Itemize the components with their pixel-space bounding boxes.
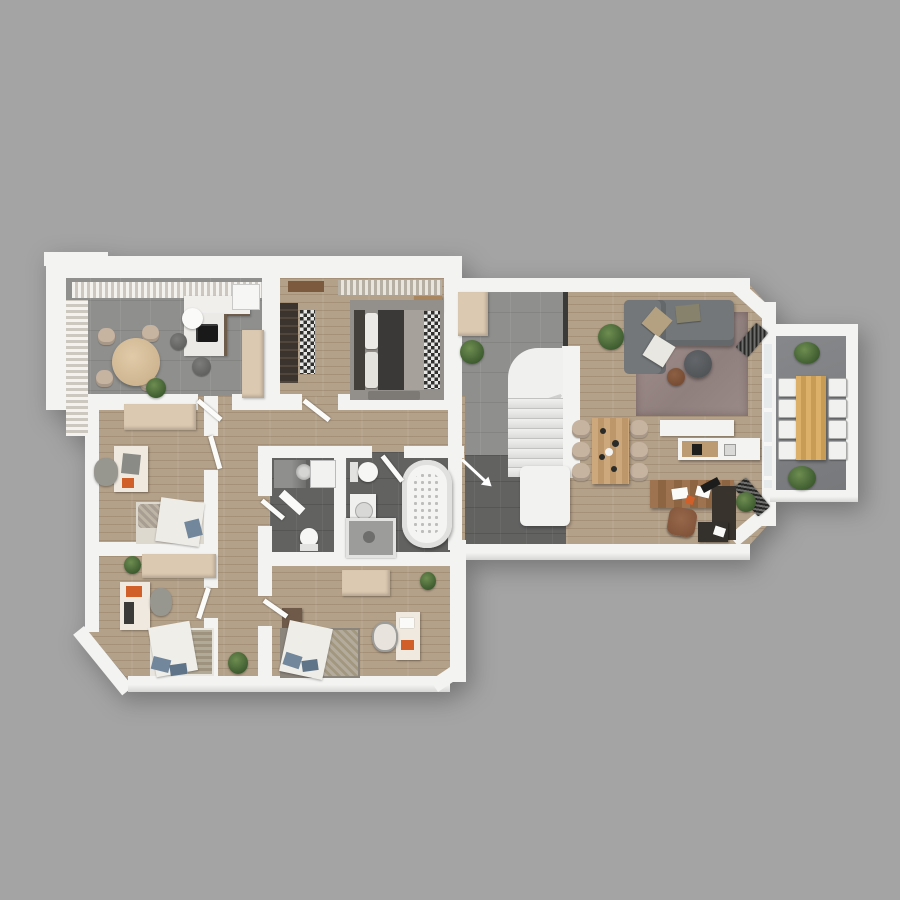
patterned-runner-bed bbox=[424, 311, 440, 389]
master-wardrobe bbox=[280, 303, 298, 383]
bath-toilet bbox=[358, 462, 378, 482]
balcony-chair bbox=[778, 378, 797, 397]
jacuzzi-bathtub bbox=[402, 460, 452, 548]
kitchen-fridge bbox=[232, 284, 260, 310]
kitchen-tall-cabinet bbox=[242, 330, 264, 398]
balcony-table bbox=[796, 376, 826, 460]
living-dining-chair bbox=[630, 463, 648, 481]
staircase-winder-block bbox=[508, 348, 563, 399]
balcony-plant-bottom bbox=[788, 466, 816, 490]
office-room-chair bbox=[94, 458, 118, 486]
bedroom-bm-wardrobe bbox=[342, 570, 390, 596]
wall-bath-top-a bbox=[258, 446, 372, 458]
kitchen-island bbox=[678, 438, 760, 460]
wall-bottom-right-section bbox=[450, 544, 750, 560]
wall-left-upper bbox=[46, 256, 66, 406]
kitchen-side-table bbox=[182, 308, 203, 329]
kitchen-cooktop bbox=[196, 324, 218, 342]
coffee-table bbox=[684, 350, 712, 378]
tableware bbox=[600, 428, 606, 434]
desk-chair-leather bbox=[666, 506, 698, 538]
balcony-plant-top bbox=[794, 342, 820, 364]
living-dining-chair bbox=[572, 420, 590, 438]
hall-plant bbox=[460, 340, 484, 364]
living-dining-chair bbox=[630, 442, 648, 460]
wall-dining-bedroom-divider bbox=[262, 262, 280, 402]
wall-balcony-top bbox=[770, 324, 858, 336]
living-dining-chair bbox=[572, 463, 590, 481]
wall-top-left-block bbox=[46, 256, 462, 278]
printer bbox=[713, 526, 726, 538]
office-room-desk bbox=[114, 446, 148, 492]
dining-chair bbox=[98, 328, 115, 345]
master-bed-duvet-light bbox=[404, 310, 424, 390]
kitchen-stool bbox=[192, 357, 211, 376]
staircase bbox=[508, 348, 563, 476]
bedroom-bm-bed bbox=[280, 628, 360, 678]
master-bed-pillows bbox=[365, 313, 378, 349]
dining-plant bbox=[146, 378, 166, 398]
wall-balcony-bottom bbox=[770, 490, 858, 502]
balcony-chair bbox=[778, 399, 797, 418]
apartment-floor-plan bbox=[0, 0, 900, 900]
bedroom-bm-laptop-orange bbox=[401, 640, 414, 650]
master-bed-headboard bbox=[354, 310, 365, 390]
sofa-cushion-olive bbox=[675, 304, 701, 323]
master-curtain bbox=[338, 280, 442, 295]
kitchen-stool bbox=[170, 333, 187, 350]
washer-drum bbox=[318, 469, 328, 479]
washing-machine bbox=[310, 460, 336, 488]
balcony-chair bbox=[828, 378, 847, 397]
wall-bedroom-mid-left-b bbox=[258, 626, 272, 680]
shower bbox=[346, 518, 396, 558]
balcony-door-glass bbox=[764, 344, 772, 488]
living-dining-chair bbox=[630, 420, 648, 438]
wall-bath-top-b bbox=[404, 446, 464, 458]
tableware-bowl bbox=[605, 448, 613, 456]
balcony-chair bbox=[778, 420, 797, 439]
balcony-chair bbox=[828, 441, 847, 460]
wall-top-right-section bbox=[452, 278, 750, 292]
master-bed-pillows bbox=[365, 352, 378, 388]
wall-bottom-lower bbox=[128, 676, 450, 692]
wall-bedroom-mid-left-a bbox=[258, 552, 272, 596]
dining-curtain-left bbox=[66, 300, 88, 436]
island-sink bbox=[724, 444, 736, 456]
desk-sheet bbox=[400, 618, 414, 628]
island-cooktop bbox=[692, 444, 702, 455]
blue-pillow bbox=[169, 663, 187, 676]
floor-plan-canvas bbox=[0, 0, 900, 900]
balcony-chair bbox=[778, 441, 797, 460]
desk-corner-plant bbox=[736, 492, 756, 512]
office-wardrobe bbox=[124, 404, 196, 430]
bedroom-bm-plant bbox=[420, 572, 436, 590]
patterned-runner-left bbox=[300, 310, 315, 374]
bedroom-bl-bed bbox=[150, 628, 214, 676]
office-room-accent-orange bbox=[122, 478, 134, 488]
master-bed-bench bbox=[368, 391, 420, 400]
wc-toilet-tank bbox=[300, 544, 318, 551]
corridor-plant bbox=[228, 652, 248, 674]
master-bed-duvet-dark bbox=[378, 310, 404, 390]
jacuzzi-jets bbox=[412, 472, 442, 536]
entry-closet bbox=[520, 466, 570, 526]
bedroom-bl-desk bbox=[120, 582, 150, 630]
living-dining-chair bbox=[572, 442, 590, 460]
tableware bbox=[612, 440, 619, 447]
balcony-chair bbox=[828, 420, 847, 439]
printer-cabinet bbox=[698, 522, 728, 542]
wall-balcony-right bbox=[846, 324, 858, 502]
bedroom-bm-desk bbox=[396, 612, 420, 660]
bedroom-bl-plant bbox=[124, 556, 141, 574]
office-room-bed bbox=[136, 502, 204, 544]
bedroom-bl-laptop-orange bbox=[126, 586, 142, 597]
blue-pillow bbox=[301, 659, 318, 672]
living-dining-table bbox=[592, 418, 629, 484]
office-room-laptop bbox=[121, 453, 141, 475]
tableware bbox=[599, 454, 605, 460]
bedroom-bm-chair bbox=[372, 622, 398, 652]
kitchen-hood-counter bbox=[660, 420, 734, 436]
bedroom-wall-shelf bbox=[288, 281, 324, 292]
shower-drain bbox=[363, 531, 375, 543]
bedroom-bl-chair bbox=[150, 588, 172, 616]
side-table bbox=[667, 368, 685, 386]
bath-toilet-tank bbox=[350, 462, 358, 482]
dining-chair bbox=[96, 370, 113, 387]
tableware bbox=[611, 466, 617, 472]
bedroom-bl-wardrobe bbox=[142, 554, 216, 578]
bedroom-bl-dark-object bbox=[124, 602, 134, 624]
living-plant bbox=[598, 324, 624, 350]
balcony-chair bbox=[828, 399, 847, 418]
hall-sideboard bbox=[458, 292, 488, 336]
